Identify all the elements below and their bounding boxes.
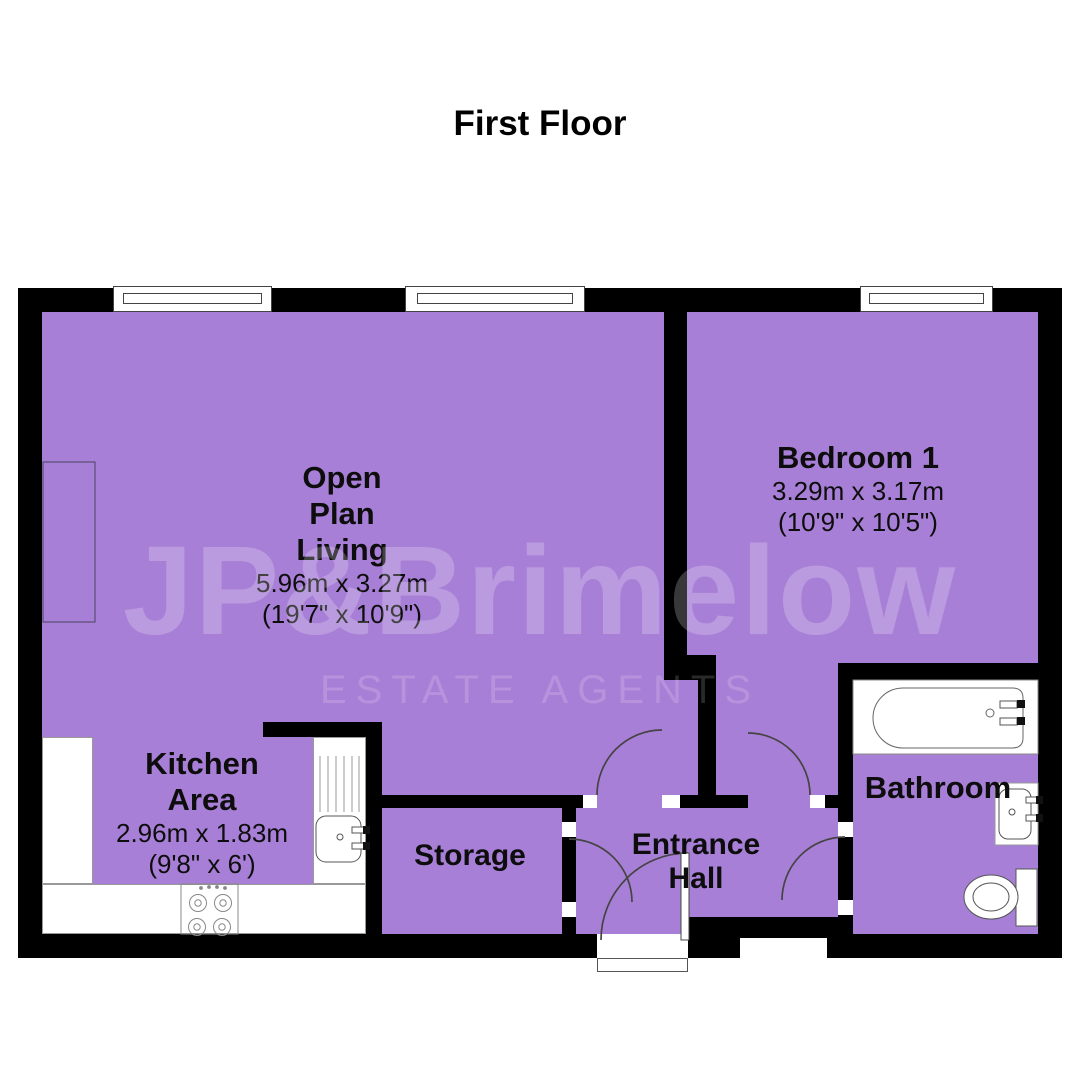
room-label-kitchen-area: KitchenArea 2.96m x 1.83m (9'8" x 6')	[52, 746, 352, 880]
room-dimensions-imperial: (9'8" x 6')	[52, 849, 352, 880]
room-label-bathroom: Bathroom	[838, 770, 1038, 806]
room-name: OpenPlanLiving	[192, 460, 492, 568]
floor-plan: First Floor	[0, 0, 1080, 1080]
room-name: Bathroom	[838, 770, 1038, 806]
door-arc-living	[597, 730, 662, 795]
page-title: First Floor	[0, 104, 1080, 144]
room-name: KitchenArea	[52, 746, 352, 818]
hob-icon	[181, 884, 238, 936]
room-name: EntranceHall	[596, 828, 796, 896]
room-name: Storage	[370, 838, 570, 874]
fixtures-layer	[0, 0, 1080, 1080]
room-label-bedroom-1: Bedroom 1 3.29m x 3.17m (10'9" x 10'5")	[708, 440, 1008, 538]
room-label-entrance-hall: EntranceHall	[596, 828, 796, 896]
room-dimensions-imperial: (10'9" x 10'5")	[708, 507, 1008, 538]
room-dimensions-metric: 3.29m x 3.17m	[708, 476, 1008, 507]
room-name: Bedroom 1	[708, 440, 1008, 476]
bathtub-icon	[853, 680, 1038, 754]
door-arc-bedroom	[748, 733, 810, 795]
fitted-unit-outline	[43, 462, 95, 622]
room-dimensions-metric: 5.96m x 3.27m	[192, 568, 492, 599]
room-label-storage: Storage	[370, 838, 570, 874]
room-dimensions-imperial: (19'7" x 10'9")	[192, 599, 492, 630]
room-label-open-plan-living: OpenPlanLiving 5.96m x 3.27m (19'7" x 10…	[192, 460, 492, 630]
room-dimensions-metric: 2.96m x 1.83m	[52, 818, 352, 849]
toilet-icon	[964, 869, 1037, 926]
